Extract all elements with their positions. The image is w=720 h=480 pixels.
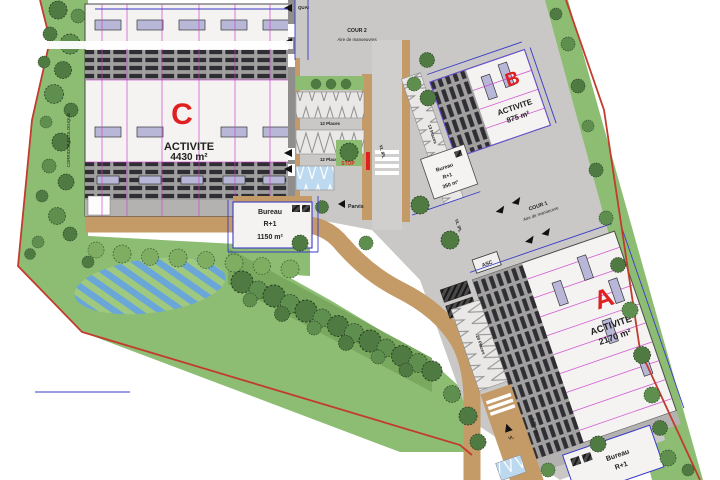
bureau-c-area: 1150 m²	[257, 234, 283, 241]
cour-2-name: COUR 2	[347, 28, 367, 34]
cour-2-subtitle: Aire de manoeuvres	[337, 37, 377, 42]
bureau-c-name: Bureau	[258, 209, 282, 216]
parking-row-accessible	[296, 166, 334, 190]
building-c-roof-panels-1	[85, 50, 293, 80]
quai-label: QUAI	[298, 5, 309, 10]
stair-core-icon	[292, 205, 300, 212]
scan-artifact	[0, 41, 293, 49]
elevator-core-icon	[302, 205, 310, 212]
building-c-letter: C	[171, 98, 193, 131]
parking-row-1-label: 12 Places	[320, 121, 341, 126]
stop-label: STOP	[341, 161, 355, 167]
building-c-notch	[88, 196, 110, 215]
curb-east	[402, 40, 410, 222]
bureau-c-level: R+1	[263, 221, 276, 228]
site-plan-svg: 12 Places 12 Places C ACTIVITE	[0, 0, 720, 480]
north-south-road	[372, 40, 402, 230]
site-plan-page: 12 Places 12 Places C ACTIVITE	[0, 0, 720, 480]
building-c-area: 4430 m²	[170, 152, 208, 163]
parking-row-1	[296, 92, 364, 118]
corridor-ecologique-label: CORRIDOR ECOLOGIQUE	[66, 113, 71, 168]
parvis-label: Parvis	[348, 204, 364, 210]
stop-line	[366, 152, 370, 170]
building-c: C ACTIVITE 4430 m²	[85, 4, 293, 216]
